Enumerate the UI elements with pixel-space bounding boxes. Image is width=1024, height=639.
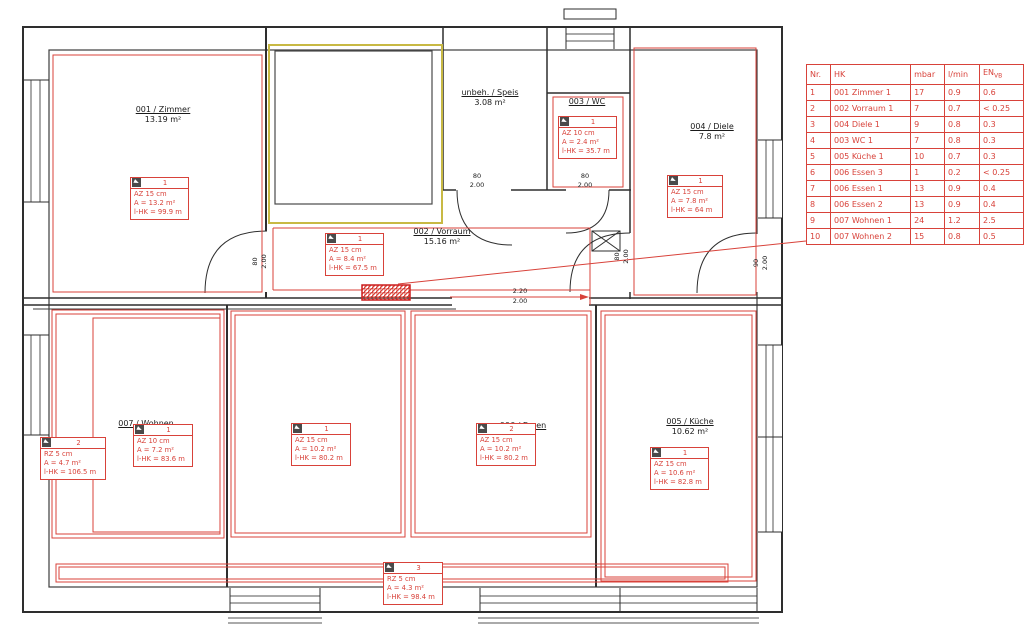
table-row: 3004 Diele 190.80.3 xyxy=(807,116,1024,132)
col-header-mbar: mbar xyxy=(911,65,945,85)
room-label-zimmer: 001 / Zimmer 13.19 m² xyxy=(118,105,208,125)
actuator-icon xyxy=(135,425,144,434)
dim-wc-door: 80 2.00 xyxy=(570,172,600,190)
room-label-kueche: 005 / Küche 10.62 m² xyxy=(652,417,728,437)
actuator-icon xyxy=(42,438,51,447)
windows-group xyxy=(23,9,783,623)
dim-speis-door: 80 2.00 xyxy=(462,172,492,190)
room-label-vorraum: 002 / Vorraum 15.16 m² xyxy=(402,227,482,247)
actuator-icon xyxy=(132,178,141,187)
actuator-icon xyxy=(385,563,394,572)
table-row: 7006 Essen 1130.90.4 xyxy=(807,180,1024,196)
hk-box-diele: 1 AZ 15 cmA = 7.8 m²l-HK = 64 m xyxy=(667,175,723,218)
heating-manifold xyxy=(362,285,410,300)
actuator-icon xyxy=(669,176,678,185)
actuator-icon xyxy=(293,424,302,433)
table-row: 8006 Essen 2130.90.4 xyxy=(807,196,1024,212)
col-header-nr: Nr. xyxy=(807,65,831,85)
dim-zimmer-door: 80 2.00 xyxy=(251,239,269,284)
table-row: 4003 WC 170.80.3 xyxy=(807,132,1024,148)
hk-box-wc: 1 AZ 10 cmA = 2.4 m²l-HK = 35.7 m xyxy=(558,116,617,159)
actuator-icon xyxy=(652,448,661,457)
table-row: 6006 Essen 310.2< 0.25 xyxy=(807,164,1024,180)
dim-entry-door: 90 2.00 xyxy=(752,237,770,289)
hk-box-randzone: 3 RZ 5 cmA = 4.3 m²l-HK = 98.4 m xyxy=(383,562,443,605)
col-header-lmin: l/min xyxy=(945,65,980,85)
hk-box-wohnen-1: 1 AZ 10 cmA = 7.2 m²l-HK = 83.6 m xyxy=(133,424,193,467)
heating-loops xyxy=(52,48,756,582)
col-header-en: ENVB xyxy=(980,65,1024,85)
dim-diele-door: 80 2.00 xyxy=(613,234,631,279)
floorplan-screenshot: 001 / Zimmer 13.19 m² unbeh. / Speis 3.0… xyxy=(0,0,1024,639)
actuator-icon xyxy=(478,424,487,433)
table-row: 9007 Wohnen 1241.22.5 xyxy=(807,212,1024,228)
dim-passage: 2.20 2.00 xyxy=(500,286,540,306)
actuator-icon xyxy=(560,117,569,126)
hk-box-essen-1: 1 AZ 15 cmA = 10.2 m²l-HK = 80.2 m xyxy=(291,423,351,466)
hk-box-zimmer: 1 AZ 15 cmA = 13.2 m²l-HK = 99.9 m xyxy=(130,177,189,220)
hk-box-kueche: 1 AZ 15 cmA = 10.6 m²l-HK = 82.8 m xyxy=(650,447,709,490)
hk-box-vorraum: 1 AZ 15 cmA = 8.4 m²l-HK = 67.5 m xyxy=(325,233,384,276)
table-row: 2002 Vorraum 170.7< 0.25 xyxy=(807,100,1024,116)
col-header-hk: HK xyxy=(831,65,911,85)
room-label-diele: 004 / Diele 7.8 m² xyxy=(674,122,750,142)
heating-circuit-table: Nr. HK mbar l/min ENVB 1001 Zimmer 1170.… xyxy=(806,64,1024,245)
hk-box-essen-2: 2 AZ 15 cmA = 10.2 m²l-HK = 80.2 m xyxy=(476,423,536,466)
unheated-area xyxy=(269,45,442,223)
actuator-icon xyxy=(327,234,336,243)
table-row: 5005 Küche 1100.70.3 xyxy=(807,148,1024,164)
table-row: 10007 Wohnen 2150.80.5 xyxy=(807,228,1024,244)
table-row: 1001 Zimmer 1170.90.6 xyxy=(807,84,1024,100)
room-label-wc: 003 / WC xyxy=(558,97,616,107)
hk-box-wohnen-2: 2 RZ 5 cmA = 4.7 m²l-HK = 106.5 m xyxy=(40,437,106,480)
room-label-speis: unbeh. / Speis 3.08 m² xyxy=(450,88,530,108)
table-header-row: Nr. HK mbar l/min ENVB xyxy=(807,65,1024,85)
leader-line xyxy=(398,241,806,284)
